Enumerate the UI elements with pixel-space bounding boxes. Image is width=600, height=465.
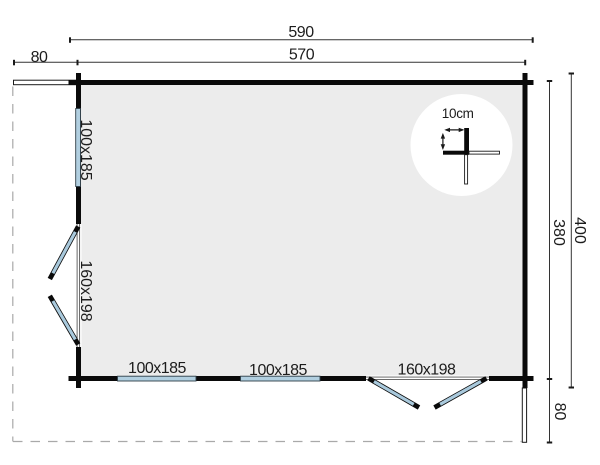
svg-text:570: 570	[289, 47, 315, 64]
svg-text:590: 590	[288, 24, 314, 41]
svg-text:80: 80	[31, 49, 48, 66]
svg-text:400: 400	[571, 217, 588, 244]
svg-text:80: 80	[551, 403, 568, 421]
svg-text:160x198: 160x198	[398, 362, 456, 379]
svg-text:380: 380	[550, 219, 567, 246]
svg-text:160x198: 160x198	[77, 260, 94, 321]
svg-text:100x185: 100x185	[128, 360, 186, 377]
svg-text:10cm: 10cm	[442, 106, 474, 121]
svg-text:100x185: 100x185	[77, 119, 94, 180]
svg-text:100x185: 100x185	[249, 362, 307, 379]
